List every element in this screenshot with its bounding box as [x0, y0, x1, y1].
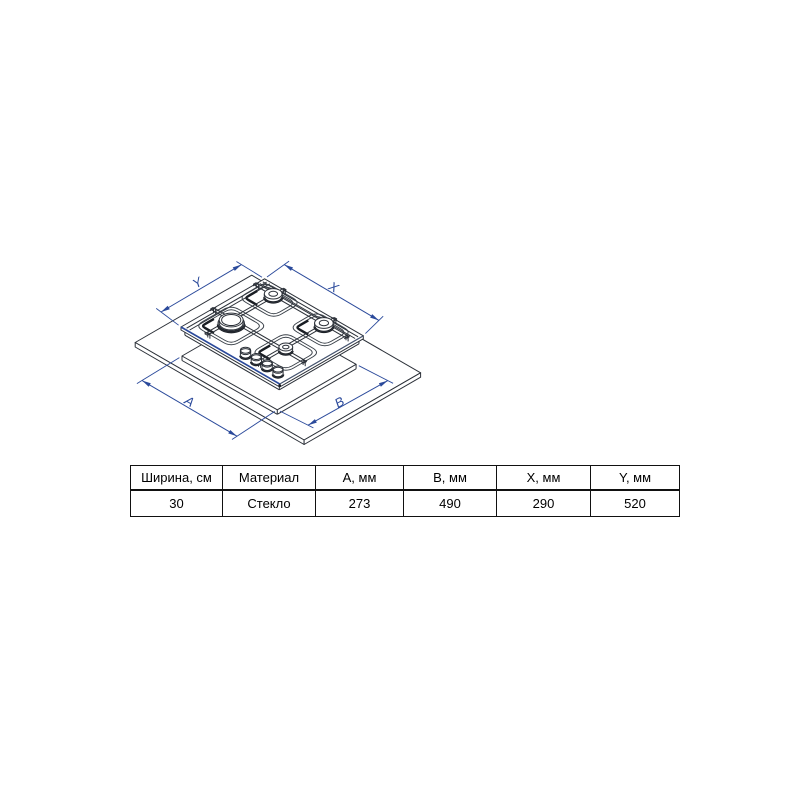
svg-text:A: A [181, 392, 197, 410]
svg-text:Y: Y [190, 273, 206, 291]
svg-text:X: X [325, 278, 342, 296]
